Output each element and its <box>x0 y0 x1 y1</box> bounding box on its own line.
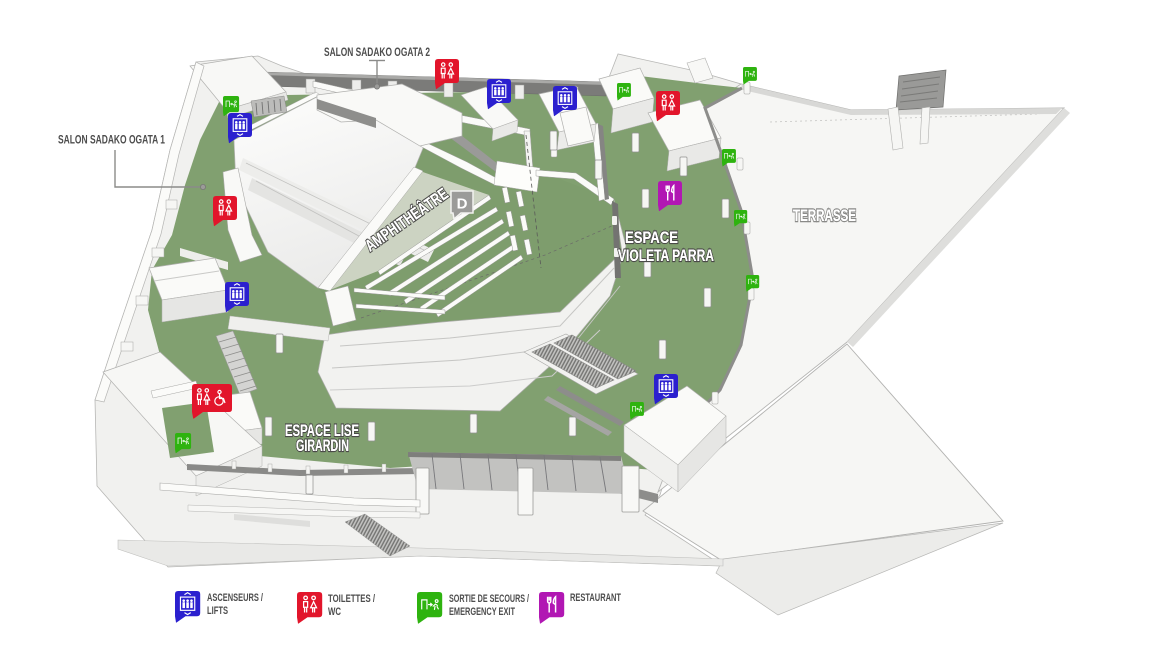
svg-text:RESTAURANT: RESTAURANT <box>570 592 621 604</box>
svg-text:D: D <box>457 196 468 213</box>
svg-text:ASCENSEURS /: ASCENSEURS / <box>207 592 263 604</box>
svg-text:TOILETTES /: TOILETTES / <box>328 593 375 605</box>
svg-text:SALON SADAKO OGATA 2: SALON SADAKO OGATA 2 <box>324 47 430 59</box>
svg-text:SORTIE DE SECOURS /: SORTIE DE SECOURS / <box>449 593 529 605</box>
svg-text:TERRASSE: TERRASSE <box>793 207 856 225</box>
svg-text:LIFTS: LIFTS <box>207 605 228 617</box>
svg-text:ESPACE: ESPACE <box>625 229 678 247</box>
svg-text:GIRARDIN: GIRARDIN <box>296 437 349 455</box>
svg-text:EMERGENCY EXIT: EMERGENCY EXIT <box>449 606 515 618</box>
svg-text:SALON SADAKO OGATA 1: SALON SADAKO OGATA 1 <box>58 135 165 147</box>
svg-text:WC: WC <box>328 606 341 618</box>
svg-text:VIOLETA PARRA: VIOLETA PARRA <box>618 247 714 265</box>
